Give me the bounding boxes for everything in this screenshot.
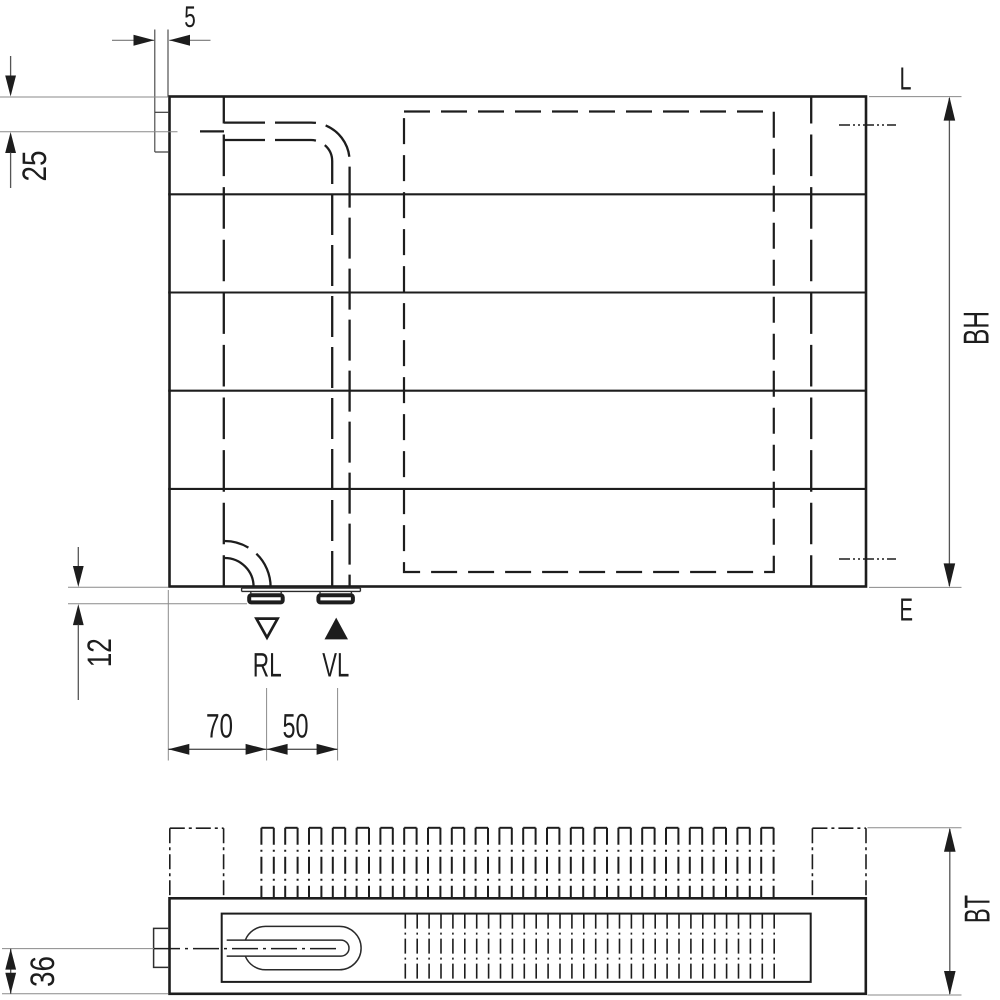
svg-text:5: 5 — [184, 1, 196, 34]
svg-text:RL: RL — [253, 647, 282, 685]
svg-text:VL: VL — [322, 647, 349, 685]
svg-text:L: L — [900, 61, 912, 97]
svg-text:BH: BH — [956, 311, 997, 345]
svg-text:BT: BT — [957, 895, 998, 923]
svg-text:50: 50 — [283, 708, 309, 746]
svg-text:36: 36 — [24, 956, 62, 987]
svg-text:70: 70 — [206, 708, 233, 746]
svg-text:E: E — [900, 592, 914, 628]
svg-text:25: 25 — [16, 151, 54, 182]
svg-text:12: 12 — [81, 638, 119, 667]
